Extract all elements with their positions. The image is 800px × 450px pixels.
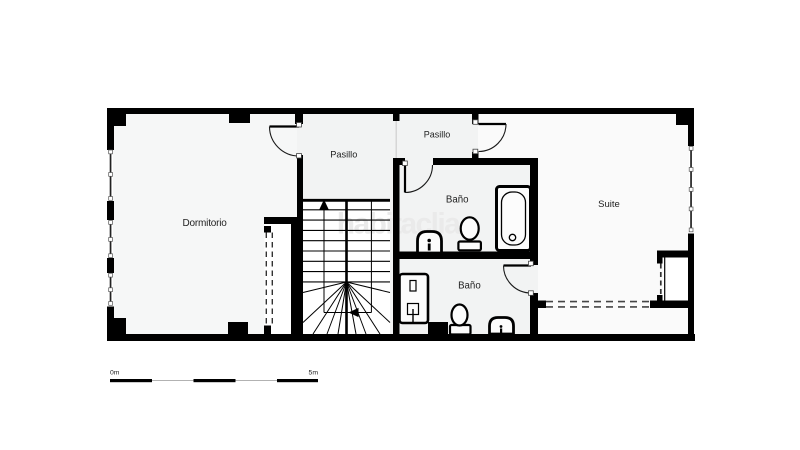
svg-text:Suite: Suite: [598, 199, 620, 210]
svg-text:Baño: Baño: [458, 281, 481, 292]
svg-text:5m: 5m: [309, 370, 319, 377]
svg-text:Pasillo: Pasillo: [330, 149, 357, 159]
svg-text:Pasillo: Pasillo: [424, 130, 451, 140]
svg-text:0m: 0m: [110, 370, 120, 377]
svg-text:Baño: Baño: [446, 195, 469, 206]
svg-text:Dormitorio: Dormitorio: [183, 218, 228, 229]
